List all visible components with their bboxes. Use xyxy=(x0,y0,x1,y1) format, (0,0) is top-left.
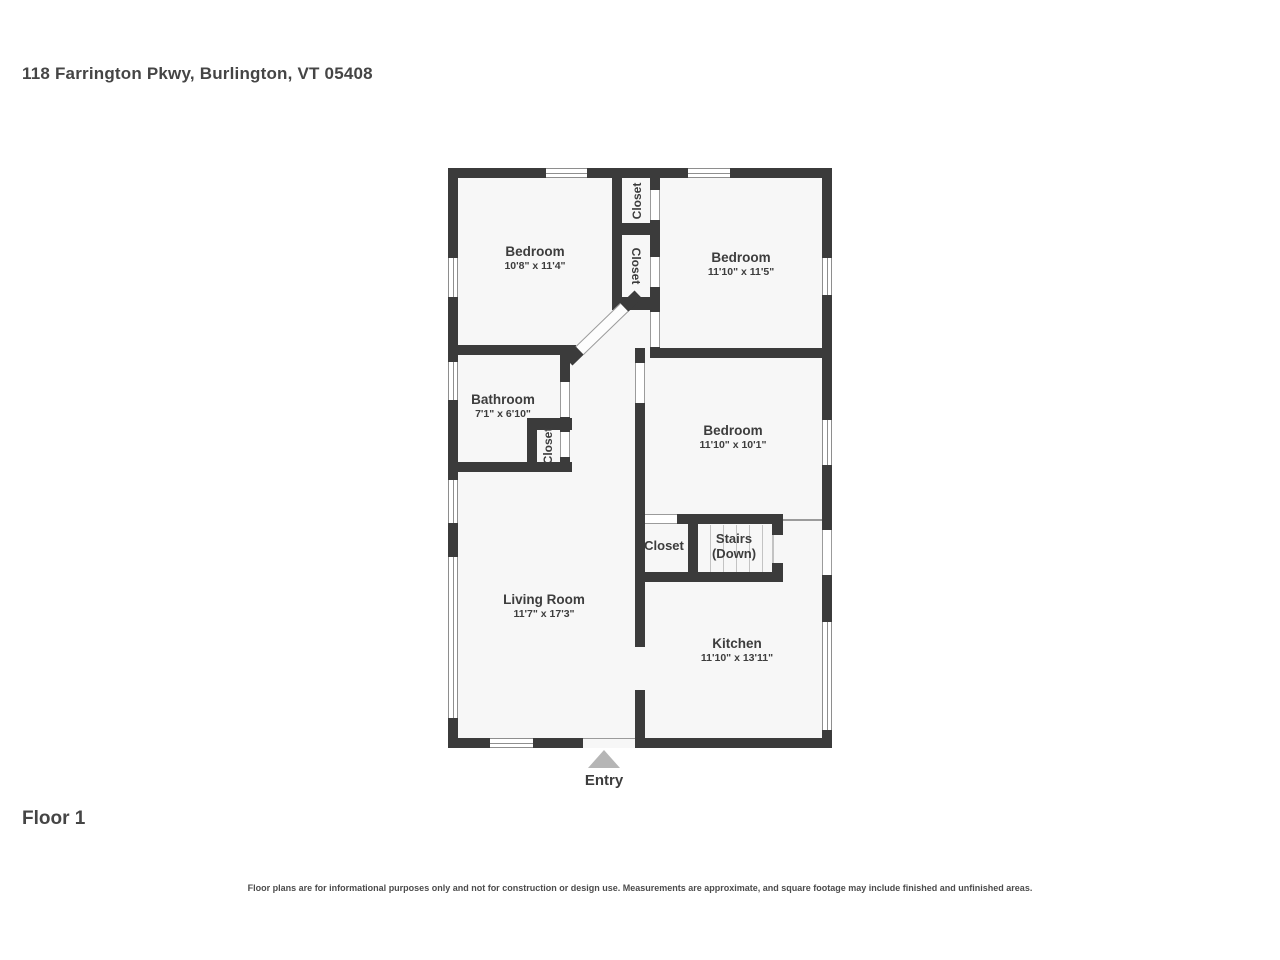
wall xyxy=(560,457,570,472)
room-name: Living Room xyxy=(503,592,585,608)
closet-label-bathroom: Closet xyxy=(541,428,555,465)
wall xyxy=(772,563,783,582)
door-opening xyxy=(822,530,832,575)
room-label-bedroom-1: Bedroom 10'8" x 11'4" xyxy=(504,244,565,273)
wall xyxy=(527,418,537,472)
stairs-label: Stairs (Down) xyxy=(712,532,756,562)
room-dimensions: 7'1" x 6'10" xyxy=(471,408,535,422)
door-opening xyxy=(635,363,645,403)
room-dimensions: 10'8" x 11'4" xyxy=(504,260,565,274)
entry-label: Entry xyxy=(585,772,623,789)
threshold-line xyxy=(583,738,635,739)
closet-label-middle: Closet xyxy=(629,248,643,285)
wall xyxy=(635,403,645,647)
floor-plan-page: 118 Farrington Pkwy, Burlington, VT 0540… xyxy=(0,0,1280,960)
door-opening xyxy=(650,190,660,220)
room-opening xyxy=(635,647,645,690)
stairs-label-line1: Stairs xyxy=(712,532,756,547)
wall xyxy=(650,220,660,257)
wall xyxy=(612,178,622,310)
wall xyxy=(650,287,660,312)
door-opening xyxy=(560,382,570,417)
window xyxy=(546,168,587,178)
room-name: Bathroom xyxy=(471,392,535,408)
wall xyxy=(560,417,570,432)
room-name: Bedroom xyxy=(504,244,565,260)
closet-label-top: Closet xyxy=(630,183,644,220)
room-label-living-room: Living Room 11'7" x 17'3" xyxy=(503,592,585,621)
room-dimensions: 11'10" x 13'11" xyxy=(701,652,773,666)
page-title: 118 Farrington Pkwy, Burlington, VT 0540… xyxy=(22,64,373,84)
wall xyxy=(650,347,660,358)
window xyxy=(448,480,458,523)
room-name: Bedroom xyxy=(708,250,774,266)
wall xyxy=(448,168,832,178)
door-opening xyxy=(560,432,570,457)
wall xyxy=(635,572,783,582)
floor-plan: Bedroom 10'8" x 11'4" Bedroom 11'10" x 1… xyxy=(448,168,832,748)
wall xyxy=(650,178,660,190)
wall xyxy=(688,517,698,582)
window xyxy=(822,420,832,465)
room-dimensions: 11'10" x 10'1" xyxy=(700,439,767,453)
window xyxy=(490,738,533,748)
room-label-kitchen: Kitchen 11'10" x 13'11" xyxy=(701,636,773,665)
door-opening xyxy=(650,257,660,287)
wall xyxy=(458,345,576,355)
wall xyxy=(772,517,783,535)
window xyxy=(688,168,730,178)
window xyxy=(822,622,832,730)
wall xyxy=(635,348,645,363)
stairs-edge-line xyxy=(772,535,774,563)
door-opening xyxy=(645,514,677,524)
threshold-line xyxy=(783,519,822,521)
stairs-label-line2: (Down) xyxy=(712,547,756,562)
room-label-bathroom: Bathroom 7'1" x 6'10" xyxy=(471,392,535,421)
room-dimensions: 11'10" x 11'5" xyxy=(708,266,774,280)
room-label-bedroom-3: Bedroom 11'10" x 10'1" xyxy=(700,423,767,452)
window xyxy=(822,258,832,295)
window xyxy=(448,362,458,400)
door-opening xyxy=(576,303,629,355)
window xyxy=(448,557,458,718)
wall xyxy=(635,690,645,748)
room-name: Bedroom xyxy=(700,423,767,439)
entry-arrow-icon xyxy=(588,750,620,768)
entry-door-opening xyxy=(583,738,635,748)
room-dimensions: 11'7" x 17'3" xyxy=(503,608,585,622)
door-opening xyxy=(650,312,660,347)
floor-label: Floor 1 xyxy=(22,808,85,830)
closet-label-stairs: Closet xyxy=(644,538,684,553)
wall xyxy=(650,348,822,358)
window xyxy=(448,258,458,297)
disclaimer-text: Floor plans are for informational purpos… xyxy=(0,883,1280,893)
room-label-bedroom-2: Bedroom 11'10" x 11'5" xyxy=(708,250,774,279)
room-name: Kitchen xyxy=(701,636,773,652)
